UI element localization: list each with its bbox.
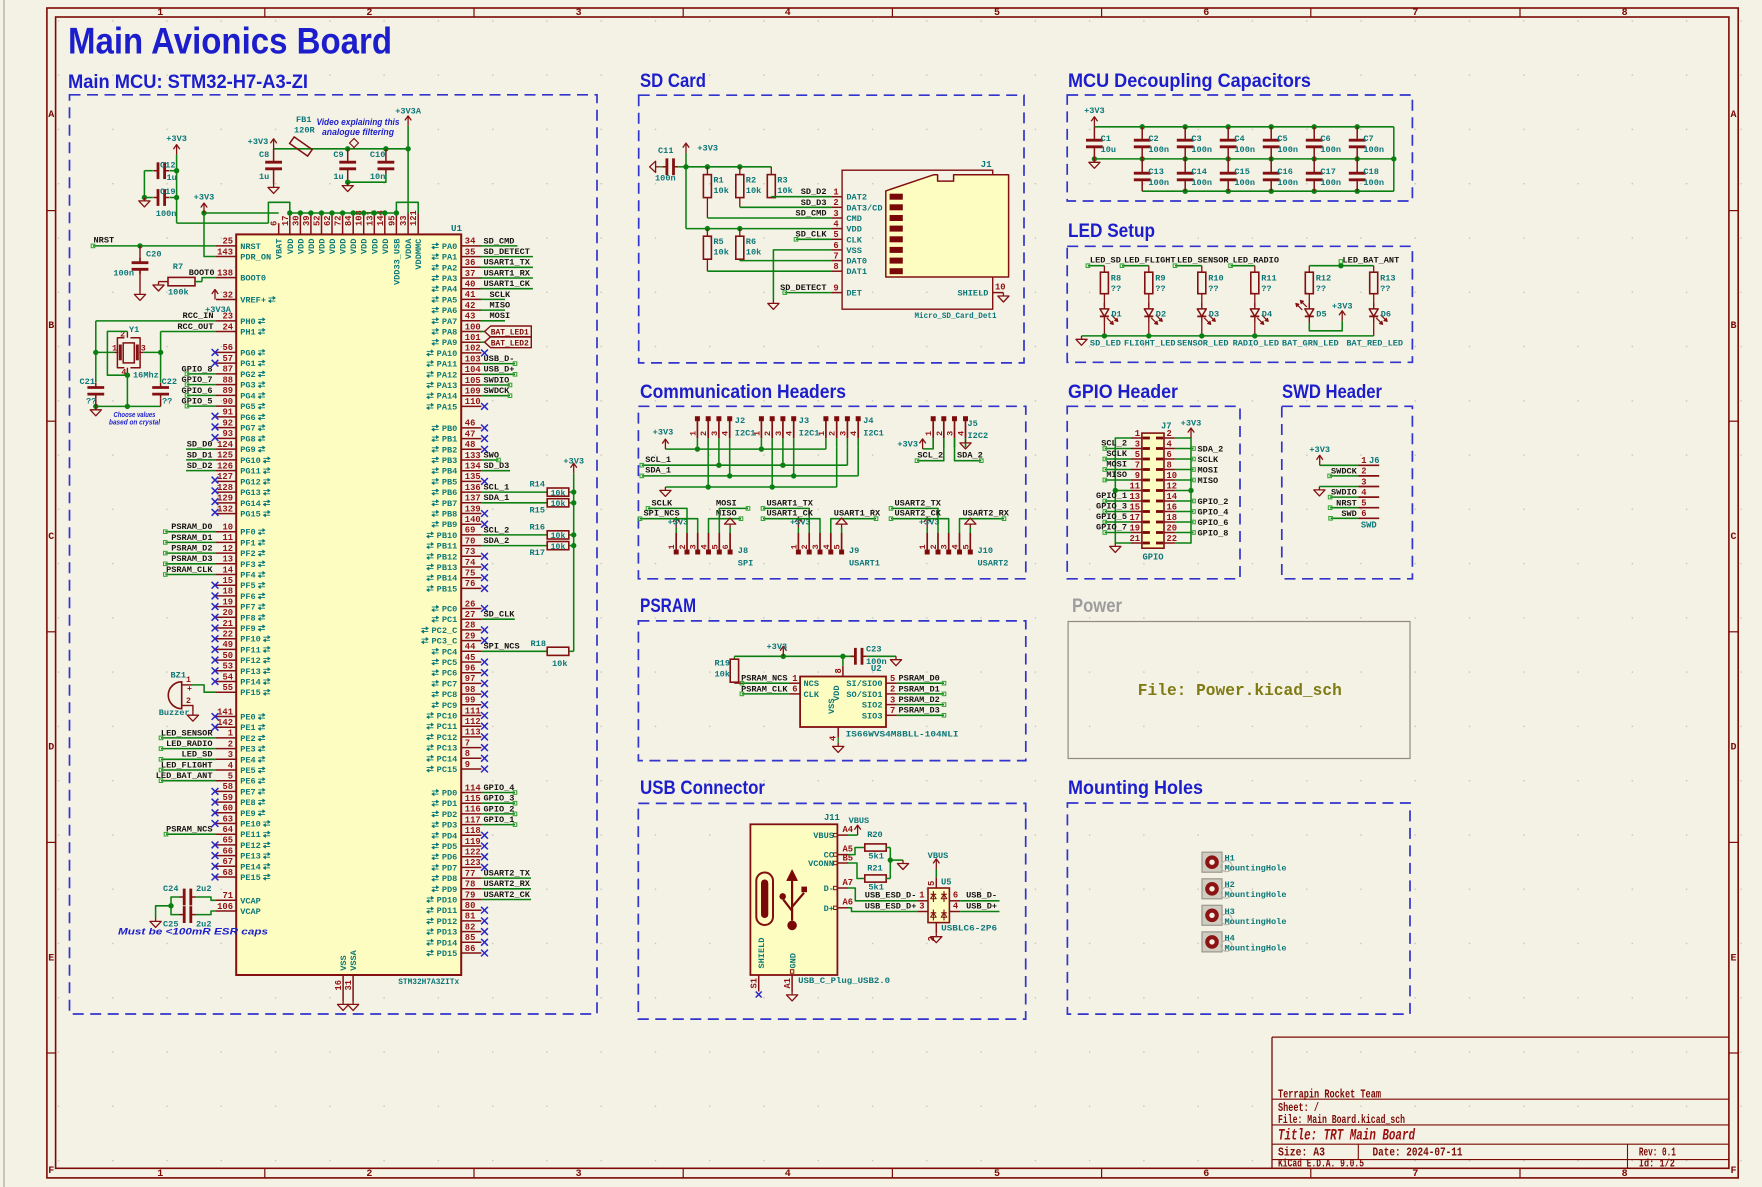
svg-text:PE7: PE7 — [240, 787, 255, 797]
svg-text:RCC_IN: RCC_IN — [183, 311, 214, 321]
svg-text:A: A — [48, 110, 54, 121]
svg-text:PF3: PF3 — [240, 560, 255, 570]
svg-text:D+: D+ — [824, 904, 834, 914]
svg-text:85: 85 — [465, 933, 476, 943]
svg-text:H3: H3 — [1225, 907, 1235, 917]
svg-text:BOOT0: BOOT0 — [240, 274, 266, 284]
svg-text:SENSOR_LED: SENSOR_LED — [1177, 339, 1229, 349]
svg-text:6: 6 — [833, 241, 838, 251]
svg-text:PA11: PA11 — [437, 360, 458, 370]
svg-text:PF15: PF15 — [240, 688, 261, 698]
svg-text:A1: A1 — [783, 978, 793, 989]
svg-text:11: 11 — [1129, 481, 1140, 491]
svg-text:PF1: PF1 — [240, 538, 255, 548]
svg-text:82: 82 — [465, 922, 476, 932]
svg-text:104: 104 — [465, 365, 482, 375]
svg-text:3: 3 — [833, 209, 838, 219]
svg-text:R16: R16 — [530, 523, 545, 533]
svg-text:PF8: PF8 — [240, 613, 255, 623]
svg-text:PE14: PE14 — [240, 862, 261, 872]
svg-text:C20: C20 — [146, 249, 161, 259]
svg-text:PE11: PE11 — [240, 830, 261, 840]
svg-text:2: 2 — [1361, 467, 1366, 477]
svg-text:3: 3 — [940, 544, 950, 549]
svg-text:PA5: PA5 — [442, 295, 457, 305]
svg-text:64: 64 — [222, 825, 233, 835]
svg-text:CLK: CLK — [846, 235, 862, 245]
svg-text:126: 126 — [217, 461, 233, 471]
svg-text:USBLC6-2P6: USBLC6-2P6 — [941, 924, 997, 934]
svg-text:7: 7 — [833, 251, 838, 261]
svg-text:15: 15 — [222, 576, 233, 586]
svg-text:16Mhz: 16Mhz — [133, 371, 159, 381]
svg-text:USART1: USART1 — [849, 559, 880, 569]
svg-text:SCL_2: SCL_2 — [1101, 439, 1127, 449]
svg-text:NRST: NRST — [1336, 498, 1357, 508]
svg-text:SD_DETECT: SD_DETECT — [484, 247, 530, 257]
svg-text:VBUS: VBUS — [928, 851, 949, 861]
svg-text:+3V3: +3V3 — [166, 134, 187, 144]
svg-text:GPIO_1: GPIO_1 — [1096, 491, 1127, 501]
svg-text:134: 134 — [465, 462, 482, 472]
svg-text:101: 101 — [465, 333, 481, 343]
svg-text:40: 40 — [465, 280, 476, 290]
svg-text:Buzzer: Buzzer — [159, 708, 190, 718]
svg-text:8: 8 — [1622, 1169, 1628, 1180]
svg-text:B: B — [1730, 321, 1736, 332]
svg-text:3: 3 — [774, 431, 784, 436]
svg-text:LED_RADIO: LED_RADIO — [1233, 255, 1279, 265]
svg-text:A6: A6 — [843, 898, 854, 908]
svg-text:8: 8 — [465, 749, 470, 759]
svg-text:PA15: PA15 — [437, 402, 458, 412]
svg-text:88: 88 — [222, 375, 233, 385]
svg-text:GPIO_7: GPIO_7 — [182, 375, 213, 385]
svg-text:PD2: PD2 — [442, 810, 457, 820]
svg-text:PE6: PE6 — [240, 777, 255, 787]
svg-text:PD10: PD10 — [437, 896, 458, 906]
svg-text:R14: R14 — [530, 480, 545, 490]
svg-text:J11: J11 — [824, 813, 840, 823]
svg-text:File: Power.kicad_sch: File: Power.kicad_sch — [1138, 681, 1342, 700]
svg-text:D4: D4 — [1262, 309, 1272, 319]
svg-text:VDD: VDD — [328, 239, 338, 254]
svg-text:57: 57 — [222, 354, 233, 364]
svg-text:Size: A3: Size: A3 — [1278, 1146, 1325, 1159]
svg-text:PE13: PE13 — [240, 852, 261, 862]
svg-text:D2: D2 — [1156, 309, 1166, 319]
svg-text:H1: H1 — [1225, 854, 1235, 864]
svg-text:8: 8 — [833, 262, 838, 272]
svg-text:109: 109 — [465, 387, 481, 397]
svg-text:100n: 100n — [156, 209, 177, 219]
svg-text:GPIO_5: GPIO_5 — [182, 397, 213, 407]
svg-text:100n: 100n — [113, 269, 134, 279]
svg-text:+3V3: +3V3 — [1309, 445, 1330, 455]
svg-text:93: 93 — [222, 429, 233, 439]
svg-text:9: 9 — [1135, 471, 1140, 481]
svg-text:123: 123 — [465, 858, 481, 868]
svg-text:R18: R18 — [531, 639, 546, 649]
svg-text:115: 115 — [465, 794, 481, 804]
svg-text:95: 95 — [387, 215, 397, 226]
svg-text:PE0: PE0 — [240, 713, 255, 723]
svg-text:1u: 1u — [333, 172, 343, 182]
svg-text:PE1: PE1 — [240, 723, 255, 733]
svg-text:PD3: PD3 — [442, 821, 457, 831]
svg-text:5: 5 — [1361, 499, 1366, 509]
svg-text:PA14: PA14 — [437, 392, 458, 402]
svg-text:1: 1 — [789, 544, 799, 549]
svg-text:SHIELD: SHIELD — [757, 938, 767, 969]
svg-text:VSS: VSS — [339, 955, 349, 970]
svg-text:??: ?? — [86, 397, 96, 407]
svg-text:J8: J8 — [738, 546, 748, 556]
svg-text:BAT_RED_LED: BAT_RED_LED — [1346, 339, 1403, 349]
svg-text:3: 3 — [689, 544, 699, 549]
svg-text:DET: DET — [846, 289, 861, 299]
svg-text:133: 133 — [465, 451, 481, 461]
svg-text:2: 2 — [228, 739, 233, 749]
svg-text:MOSI: MOSI — [1198, 466, 1219, 476]
svg-text:100n: 100n — [1277, 178, 1298, 188]
svg-text:R6: R6 — [746, 237, 756, 247]
svg-text:PA10: PA10 — [437, 349, 458, 359]
svg-text:VBUS: VBUS — [813, 831, 834, 841]
svg-text:PB2: PB2 — [442, 445, 457, 455]
svg-text:4: 4 — [721, 431, 731, 436]
svg-text:2: 2 — [800, 544, 810, 549]
svg-text:R8: R8 — [1111, 273, 1121, 283]
svg-text:C24: C24 — [163, 884, 178, 894]
svg-text:4: 4 — [849, 431, 859, 436]
svg-text:Main MCU: STM32-H7-A3-ZI: Main MCU: STM32-H7-A3-ZI — [68, 72, 308, 93]
svg-text:VBUS: VBUS — [849, 816, 870, 826]
svg-text:MISO: MISO — [1106, 470, 1127, 480]
svg-text:SIO3: SIO3 — [862, 711, 883, 721]
svg-text:??: ?? — [1155, 284, 1165, 294]
svg-text:PG11: PG11 — [240, 467, 261, 477]
svg-text:PG6: PG6 — [240, 413, 255, 423]
svg-text:R2: R2 — [746, 175, 756, 185]
svg-text:PD8: PD8 — [442, 874, 457, 884]
svg-text:SD Card: SD Card — [640, 71, 706, 92]
svg-text:8: 8 — [1622, 8, 1628, 19]
svg-text:R7: R7 — [173, 262, 183, 272]
svg-text:USART2_CK: USART2_CK — [484, 890, 531, 900]
svg-text:100n: 100n — [655, 173, 676, 183]
svg-text:3: 3 — [811, 544, 821, 549]
svg-text:7: 7 — [1135, 460, 1140, 470]
svg-text:91: 91 — [222, 408, 233, 418]
svg-text:PE15: PE15 — [240, 873, 261, 883]
svg-text:10n: 10n — [370, 172, 385, 182]
svg-text:PC0: PC0 — [442, 605, 457, 615]
svg-text:SWD: SWD — [1341, 509, 1356, 519]
svg-text:100n: 100n — [1363, 145, 1384, 155]
svg-text:PD13: PD13 — [437, 928, 458, 938]
svg-text:Mounting Holes: Mounting Holes — [1068, 778, 1203, 799]
svg-text:USART2_RX: USART2_RX — [484, 879, 531, 889]
svg-text:MountingHole: MountingHole — [1225, 890, 1287, 900]
svg-text:PG9: PG9 — [240, 445, 255, 455]
svg-text:PG13: PG13 — [240, 488, 261, 498]
svg-text:PB14: PB14 — [437, 574, 458, 584]
svg-text:5: 5 — [833, 544, 843, 549]
svg-text:124: 124 — [217, 440, 234, 450]
svg-text:R19: R19 — [715, 659, 730, 669]
svg-text:PSRAM_NCS: PSRAM_NCS — [166, 825, 212, 835]
svg-text:SD_CMD: SD_CMD — [796, 208, 827, 218]
svg-text:2: 2 — [763, 431, 773, 436]
svg-text:PC12: PC12 — [437, 733, 458, 743]
svg-text:USART2_CK: USART2_CK — [895, 509, 942, 519]
svg-text:PG8: PG8 — [240, 434, 255, 444]
svg-text:6: 6 — [953, 891, 958, 901]
svg-text:92: 92 — [222, 418, 233, 428]
svg-text:36: 36 — [465, 258, 476, 268]
svg-text:43: 43 — [465, 312, 476, 322]
svg-text:GPIO_6: GPIO_6 — [182, 386, 213, 396]
svg-text:Y1: Y1 — [129, 325, 139, 335]
svg-text:C1: C1 — [1101, 134, 1111, 144]
svg-text:PA9: PA9 — [442, 338, 457, 348]
svg-text:5: 5 — [890, 674, 895, 684]
svg-text:56: 56 — [222, 343, 233, 353]
svg-text:MountingHole: MountingHole — [1225, 943, 1287, 953]
svg-text:100n: 100n — [1148, 178, 1169, 188]
svg-text:VDD: VDD — [339, 239, 349, 254]
svg-text:R10: R10 — [1208, 273, 1223, 283]
svg-text:USART1_TX: USART1_TX — [484, 258, 531, 268]
svg-text:6: 6 — [1203, 8, 1209, 19]
svg-text:137: 137 — [465, 494, 481, 504]
svg-text:PG2: PG2 — [240, 370, 255, 380]
svg-text:7: 7 — [465, 738, 470, 748]
svg-text:18: 18 — [222, 587, 233, 597]
svg-text:SDA_1: SDA_1 — [645, 466, 671, 476]
svg-text:I2C2: I2C2 — [968, 431, 989, 441]
svg-text:2: 2 — [935, 431, 945, 436]
svg-text:24: 24 — [222, 322, 233, 332]
svg-text:140: 140 — [465, 515, 481, 525]
svg-text:10k: 10k — [551, 542, 566, 552]
svg-text:100n: 100n — [1191, 178, 1212, 188]
svg-text:D3: D3 — [1209, 309, 1219, 319]
svg-text:U1: U1 — [451, 223, 463, 234]
svg-text:120R: 120R — [294, 126, 315, 136]
svg-text:PF14: PF14 — [240, 678, 261, 688]
svg-text:C8: C8 — [259, 150, 269, 160]
svg-text:52: 52 — [313, 215, 323, 226]
svg-text:142: 142 — [217, 718, 233, 728]
svg-text:PD15: PD15 — [437, 949, 458, 959]
svg-text:GPIO_5: GPIO_5 — [1096, 512, 1127, 522]
svg-text:PSRAM_D1: PSRAM_D1 — [899, 684, 940, 694]
svg-text:+3V3: +3V3 — [897, 440, 918, 450]
svg-text:A: A — [1730, 110, 1736, 121]
svg-text:D: D — [48, 743, 54, 754]
svg-text:R20: R20 — [867, 830, 882, 840]
svg-text:112: 112 — [465, 717, 481, 727]
svg-text:SDA_2: SDA_2 — [1198, 445, 1224, 455]
svg-text:GPIO_3: GPIO_3 — [1096, 502, 1127, 512]
svg-text:LED_BAT_ANT: LED_BAT_ANT — [1343, 255, 1400, 265]
svg-text:Power: Power — [1072, 596, 1123, 617]
svg-text:10k: 10k — [746, 186, 761, 196]
svg-text:??: ?? — [1208, 284, 1218, 294]
svg-text:USB_D-: USB_D- — [484, 354, 515, 364]
svg-text:PG10: PG10 — [240, 456, 261, 466]
svg-text:PH1: PH1 — [240, 328, 255, 338]
svg-text:PC2_C: PC2_C — [432, 626, 458, 636]
svg-text:4: 4 — [785, 431, 795, 436]
svg-text:+3V3: +3V3 — [1084, 106, 1105, 116]
svg-text:VSS: VSS — [846, 246, 861, 256]
svg-text:MISO: MISO — [490, 301, 511, 311]
svg-text:1: 1 — [228, 729, 233, 739]
svg-text:PC9: PC9 — [442, 701, 457, 711]
svg-text:C11: C11 — [658, 146, 673, 156]
svg-text:VDD: VDD — [318, 239, 328, 254]
svg-text:100n: 100n — [1234, 145, 1255, 155]
svg-text:SPI_NCS: SPI_NCS — [644, 509, 680, 519]
svg-text:Rev: 0.1: Rev: 0.1 — [1639, 1146, 1676, 1159]
svg-text:PC4: PC4 — [442, 647, 457, 657]
svg-text:I2C1: I2C1 — [863, 429, 884, 439]
svg-text:1u: 1u — [259, 172, 269, 182]
svg-text:PA4: PA4 — [442, 285, 457, 295]
svg-text:Terrapin Rocket Team: Terrapin Rocket Team — [1278, 1089, 1381, 1102]
svg-text:1: 1 — [792, 674, 797, 684]
svg-text:17: 17 — [1129, 513, 1140, 523]
svg-text:102: 102 — [465, 344, 481, 354]
svg-text:1: 1 — [833, 188, 838, 198]
svg-text:+3V3: +3V3 — [248, 137, 269, 147]
svg-text:141: 141 — [217, 707, 233, 717]
svg-text:USART1_RX: USART1_RX — [484, 268, 531, 278]
svg-text:SD_D3: SD_D3 — [484, 461, 510, 471]
svg-text:2: 2 — [828, 431, 838, 436]
svg-text:106: 106 — [217, 902, 233, 912]
svg-text:+3V3: +3V3 — [194, 192, 215, 202]
svg-text:SCLK: SCLK — [490, 290, 511, 300]
svg-text:GND: GND — [789, 953, 799, 968]
svg-text:47: 47 — [465, 429, 476, 439]
svg-text:USART2_RX: USART2_RX — [963, 509, 1010, 519]
svg-text:100n: 100n — [1277, 145, 1298, 155]
svg-text:R17: R17 — [530, 548, 545, 558]
svg-text:VBAT: VBAT — [275, 239, 285, 260]
svg-text:PC6: PC6 — [442, 669, 457, 679]
svg-text:105: 105 — [465, 376, 481, 386]
svg-text:4: 4 — [785, 1169, 791, 1180]
svg-text:USB_D+: USB_D+ — [484, 365, 515, 375]
svg-text:MOSI: MOSI — [490, 311, 511, 321]
svg-text:USB_ESD_D-: USB_ESD_D- — [865, 891, 917, 901]
svg-text:21: 21 — [222, 619, 233, 629]
svg-text:114: 114 — [465, 783, 482, 793]
svg-text:8: 8 — [1167, 460, 1172, 470]
svg-text:3: 3 — [228, 750, 233, 760]
svg-text:USB_C_Plug_USB2.0: USB_C_Plug_USB2.0 — [798, 976, 890, 986]
svg-text:PF13: PF13 — [240, 667, 261, 677]
svg-text:1: 1 — [919, 891, 924, 901]
svg-text:84: 84 — [344, 215, 354, 226]
svg-text:PSRAM_D3: PSRAM_D3 — [171, 554, 212, 564]
svg-text:GPIO_8: GPIO_8 — [182, 364, 213, 374]
svg-text:PB12: PB12 — [437, 552, 458, 562]
svg-text:R12: R12 — [1316, 273, 1331, 283]
svg-text:6: 6 — [721, 544, 731, 549]
svg-text:46: 46 — [465, 419, 476, 429]
svg-text:D5: D5 — [1316, 309, 1326, 319]
svg-text:100n: 100n — [1191, 145, 1212, 155]
svg-text:PD1: PD1 — [442, 799, 457, 809]
svg-text:R11: R11 — [1261, 273, 1276, 283]
svg-text:77: 77 — [465, 869, 476, 879]
svg-text:SWDIO: SWDIO — [1331, 488, 1357, 498]
svg-text:90: 90 — [222, 397, 233, 407]
svg-text:35: 35 — [465, 247, 476, 257]
svg-text:Communication Headers: Communication Headers — [640, 382, 846, 403]
svg-text:??: ?? — [162, 397, 172, 407]
svg-text:SWDCK: SWDCK — [484, 386, 511, 396]
svg-text:4: 4 — [822, 544, 832, 549]
svg-text:SI/SIO0: SI/SIO0 — [846, 679, 882, 689]
svg-text:12: 12 — [222, 544, 233, 554]
svg-text:30: 30 — [291, 215, 301, 226]
svg-text:4: 4 — [1167, 439, 1173, 449]
svg-text:PA7: PA7 — [442, 317, 457, 327]
svg-text:100n: 100n — [1320, 145, 1341, 155]
svg-text:53: 53 — [222, 662, 233, 672]
svg-text:PA13: PA13 — [437, 381, 458, 391]
svg-text:SDA_1: SDA_1 — [484, 493, 510, 503]
svg-text:PD4: PD4 — [442, 831, 457, 841]
svg-text:USART1_TX: USART1_TX — [767, 498, 814, 508]
svg-text:PA0: PA0 — [442, 242, 457, 252]
svg-text:GPIO_8: GPIO_8 — [1198, 529, 1229, 539]
svg-text:D1: D1 — [1111, 309, 1121, 319]
svg-text:FLIGHT_LED: FLIGHT_LED — [1124, 339, 1176, 349]
svg-text:J5: J5 — [968, 419, 978, 429]
svg-text:C19: C19 — [160, 187, 175, 197]
svg-text:VDD: VDD — [307, 239, 317, 254]
svg-text:132: 132 — [217, 504, 233, 514]
svg-text:10: 10 — [995, 282, 1006, 292]
svg-text:C: C — [1730, 532, 1736, 543]
svg-text:USB_D+: USB_D+ — [966, 902, 997, 912]
svg-text:VDDMMC: VDDMMC — [414, 239, 424, 270]
svg-text:PE3: PE3 — [240, 745, 255, 755]
svg-text:VDDA: VDDA — [404, 238, 414, 259]
svg-text:PC10: PC10 — [437, 712, 458, 722]
svg-text:CLK: CLK — [804, 690, 820, 700]
svg-text:PG15: PG15 — [240, 510, 261, 520]
svg-text:1: 1 — [186, 676, 191, 685]
svg-text:31: 31 — [344, 980, 354, 991]
svg-text:R15: R15 — [530, 505, 545, 515]
svg-text:PB10: PB10 — [437, 531, 458, 541]
svg-text:NCS: NCS — [804, 679, 819, 689]
svg-text:PF2: PF2 — [240, 549, 255, 559]
svg-text:4: 4 — [1361, 488, 1367, 498]
svg-text:143: 143 — [217, 247, 233, 257]
svg-text:15: 15 — [1129, 502, 1140, 512]
svg-text:Main Avionics Board: Main Avionics Board — [68, 21, 392, 62]
svg-text:PD0: PD0 — [442, 789, 457, 799]
